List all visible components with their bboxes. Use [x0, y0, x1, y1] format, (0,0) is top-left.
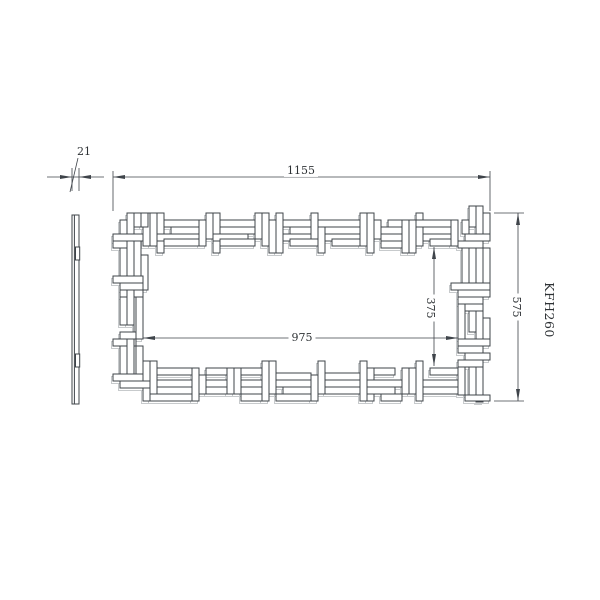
mirror-technical-drawing: 1155 21 975 375 575 KFH260 [0, 0, 600, 600]
dim-label-overall-height: 575 [510, 294, 522, 321]
dim-label-inner-width: 975 [289, 332, 316, 344]
product-code-label: KFH260 [542, 279, 556, 341]
dim-label-inner-height: 375 [424, 295, 436, 322]
dim-label-overall-width: 1155 [284, 165, 318, 177]
dim-label-profile-thickness: 21 [74, 146, 94, 158]
